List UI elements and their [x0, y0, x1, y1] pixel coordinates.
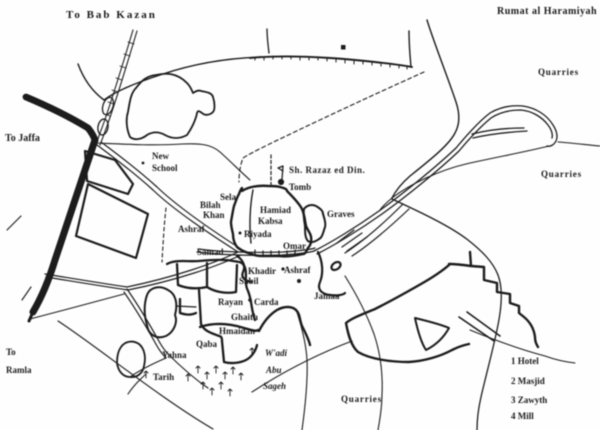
svg-text:Jamaa: Jamaa [314, 291, 340, 301]
svg-text:Khan: Khan [203, 210, 225, 220]
svg-text:Hmaidan: Hmaidan [219, 326, 255, 336]
svg-text:School: School [152, 163, 178, 173]
svg-text:3 Zawyth: 3 Zawyth [511, 395, 547, 405]
svg-text:Carda: Carda [254, 297, 279, 307]
svg-text:To Bab Kazan: To Bab Kazan [66, 9, 157, 21]
svg-text:Rayan: Rayan [218, 297, 243, 307]
svg-text:Ashraf: Ashraf [178, 224, 206, 234]
svg-text:Sela: Sela [220, 192, 237, 202]
svg-text:Omar: Omar [283, 241, 306, 251]
svg-text:To: To [6, 347, 16, 357]
svg-text:Ashraf: Ashraf [284, 265, 312, 275]
svg-text:Sageh: Sageh [263, 381, 286, 391]
svg-text:Tomb: Tomb [289, 182, 311, 192]
svg-text:Bilah: Bilah [200, 200, 221, 210]
svg-text:Abu: Abu [265, 365, 282, 375]
svg-text:Samad: Samad [197, 247, 224, 257]
svg-text:Quarries: Quarries [341, 394, 382, 404]
svg-text:Khadir: Khadir [248, 266, 276, 276]
svg-text:Hamiad: Hamiad [260, 205, 291, 215]
svg-text:Quarries: Quarries [541, 169, 582, 179]
svg-text:Sh. Razaz ed Din.: Sh. Razaz ed Din. [289, 165, 365, 175]
svg-text:Ghaith: Ghaith [231, 312, 258, 322]
svg-text:Qaba: Qaba [196, 339, 218, 349]
svg-text:W'adi: W'adi [265, 348, 288, 358]
svg-text:1 Hotel: 1 Hotel [511, 356, 539, 366]
svg-text:Yahna: Yahna [162, 350, 187, 360]
svg-text:Tarih: Tarih [153, 372, 174, 382]
svg-text:To Jaffa: To Jaffa [5, 133, 40, 144]
svg-text:Rumat al Haramiyah: Rumat al Haramiyah [497, 6, 597, 17]
svg-text:4 Mill: 4 Mill [511, 411, 534, 421]
svg-text:Quarries: Quarries [538, 67, 579, 77]
svg-text:Kabsa: Kabsa [258, 216, 283, 226]
svg-text:2 Masjid: 2 Masjid [511, 376, 545, 386]
svg-text:Sabil: Sabil [239, 276, 259, 286]
svg-text:New: New [152, 151, 169, 161]
svg-text:Riyada: Riyada [244, 229, 272, 239]
svg-text:Ramla: Ramla [6, 365, 32, 375]
svg-text:Graves: Graves [327, 209, 355, 219]
